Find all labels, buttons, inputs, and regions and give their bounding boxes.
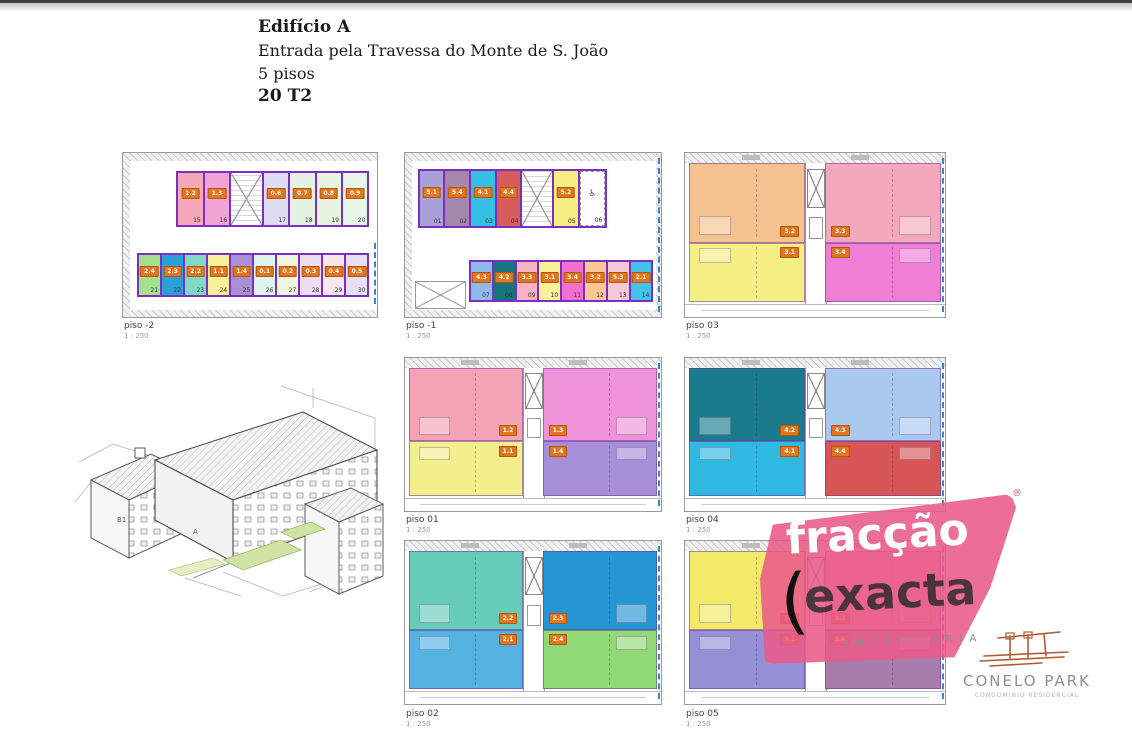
unit-badge: 3.3 [831, 226, 850, 237]
space-number: 02 [459, 218, 467, 225]
elevator-shaft [527, 605, 540, 627]
unit-badge: 4.1 [474, 187, 493, 198]
parking-space: 0.227 [277, 255, 300, 295]
space-number: 15 [193, 217, 201, 224]
unit-badge: 4.2 [495, 272, 514, 283]
space-number: 12 [596, 292, 604, 299]
apartment-unit: 4.2 [689, 368, 805, 441]
floor-plan-body: 2.22.32.12.4 [405, 551, 661, 692]
parking-space: 5.205 [554, 171, 580, 226]
parking-space: 0.429 [323, 255, 346, 295]
plan-label: piso 01 [406, 515, 439, 525]
axonometric-view: B1 A [73, 382, 385, 600]
unit-badge: 1.3 [208, 188, 227, 199]
unit-badge: 4.2 [780, 425, 799, 436]
parking-space: 5.402 [445, 171, 471, 226]
parking-space: 3.309 [517, 262, 540, 301]
elevator-shaft [809, 418, 822, 438]
elevator-shaft [809, 217, 822, 239]
parking-space: 4.404 [497, 171, 523, 226]
axonometric-drawing [73, 382, 385, 600]
apartment-unit: 4.1 [689, 441, 805, 496]
floor-plan-body: 1.21.31.11.4 [405, 368, 661, 499]
garage-ramp [415, 281, 466, 309]
apartment-unit: 1.1 [409, 441, 523, 496]
context-hatch [405, 541, 661, 551]
floor-plan-piso-02: 2.22.32.12.4 [404, 540, 662, 705]
unit-badge: 4.3 [472, 272, 491, 283]
wall-hatch [123, 153, 130, 317]
floor-plan-piso-01: 1.21.31.11.4 [404, 357, 662, 512]
apartment-unit: 4.4 [825, 441, 941, 496]
wall-hatch [405, 310, 661, 317]
unit-badge: 1.2 [499, 425, 518, 436]
space-number: 03 [485, 218, 493, 225]
parking-space: 2.322 [162, 255, 185, 295]
parking-space: 1.316 [205, 173, 231, 225]
parking-row-top: 1.2151.3160.6170.7180.8190.920 [176, 171, 369, 227]
unit-badge: 0.4 [325, 266, 344, 277]
apartment-unit: 1.4 [543, 441, 657, 496]
context-hatch [685, 153, 945, 163]
context-hatch [405, 358, 661, 368]
logo-subtitle: CONDOMÍNIO RESIDENCIAL [952, 692, 1102, 699]
boundary-line [942, 363, 944, 507]
building-header: Edifício A Entrada pela Travessa do Mont… [258, 16, 608, 108]
plan-caption: piso -1 1 : 250 [406, 321, 436, 340]
space-number: 24 [220, 287, 228, 294]
parking-space: 1.215 [178, 173, 204, 225]
wall-hatch [405, 153, 412, 317]
boundary-line [658, 546, 660, 699]
plan-caption: piso 04 1 : 250 [686, 515, 719, 534]
unit-badge: 4.4 [831, 446, 850, 457]
conelo-park-icon [972, 626, 1082, 672]
unit-badge: 1.1 [499, 446, 518, 457]
unit-badge: 3.3 [518, 272, 537, 283]
space-number: 09 [528, 292, 536, 299]
stair-cross [807, 169, 824, 208]
unit-badge: 3.4 [563, 272, 582, 283]
apartment-unit: 3.2 [689, 163, 805, 243]
space-number: 18 [305, 217, 313, 224]
stair-core [805, 368, 828, 499]
parking-space: 1.425 [231, 255, 254, 295]
parking-space: 0.718 [290, 173, 316, 225]
stairwell-block [522, 171, 554, 226]
wall-hatch [123, 153, 377, 161]
apartment-unit: 1.2 [409, 368, 523, 441]
space-number: 23 [196, 287, 204, 294]
space-number: 28 [312, 287, 320, 294]
boundary-line [658, 158, 660, 312]
space-number: 29 [335, 287, 343, 294]
space-number: 07 [482, 292, 490, 299]
space-number: 01 [434, 218, 442, 225]
parking-space: 0.530 [346, 255, 367, 295]
building-typology: 20 T2 [258, 85, 608, 108]
apartment-unit: 3.3 [825, 163, 941, 243]
elevator-shaft [527, 418, 540, 438]
parking-space: 2.421 [139, 255, 162, 295]
space-number: 25 [243, 287, 251, 294]
floor-plan-body: 3.23.33.13.4 [685, 163, 945, 305]
parking-space: 1.124 [208, 255, 231, 295]
plan-caption: piso 02 1 : 250 [406, 709, 439, 728]
context-hatch [685, 358, 945, 368]
space-number: 26 [266, 287, 274, 294]
plan-label: piso 03 [686, 321, 719, 331]
parking-row-bottom: 4.3074.2083.3093.1103.4113.2125.3132.114 [469, 260, 653, 303]
apartment-unit: 2.1 [409, 630, 523, 689]
parking-space: 3.110 [539, 262, 562, 301]
plan-caption: piso 01 1 : 250 [406, 515, 439, 534]
unit-badge: 5.4 [448, 187, 467, 198]
axon-building-a-label: A [193, 528, 198, 536]
space-number: 14 [642, 292, 650, 299]
unit-badge: 2.2 [186, 266, 205, 277]
building-title: Edifício A [258, 16, 608, 39]
wheelchair-icon: ♿ [588, 189, 596, 199]
space-number: 20 [358, 217, 366, 224]
apartment-unit: 2.2 [409, 551, 523, 630]
space-number: 04 [511, 218, 519, 225]
unit-badge: 1.4 [549, 446, 568, 457]
parking-space: 4.208 [494, 262, 517, 301]
space-number: 27 [289, 287, 297, 294]
parking-space: 0.328 [300, 255, 323, 295]
parking-row-bottom: 2.4212.3222.2231.1241.4250.1260.2270.328… [137, 253, 369, 297]
stair-cross [525, 373, 542, 409]
plan-label: piso -2 [124, 321, 154, 331]
space-number: 08 [505, 292, 513, 299]
stair-core [523, 368, 545, 499]
unit-badge: 1.3 [549, 425, 568, 436]
plan-caption: piso 03 1 : 250 [686, 321, 719, 340]
parking-space: 0.126 [254, 255, 277, 295]
parking-space: 0.920 [343, 173, 367, 225]
unit-badge: 2.2 [499, 613, 518, 624]
parking-space: 3.212 [585, 262, 608, 301]
garage-plan-piso-minus-2: 1.2151.3160.6170.7180.8190.920 2.4212.32… [122, 152, 378, 318]
apartment-unit: 1.3 [543, 368, 657, 441]
window-top-shadow [0, 3, 1132, 12]
plan-label: piso 05 [686, 709, 719, 719]
floor-plan-body: 4.24.34.14.4 [685, 368, 945, 499]
unit-badge: 5.1 [422, 187, 441, 198]
unit-badge: 1.4 [232, 266, 251, 277]
unit-badge: 0.3 [301, 266, 320, 277]
stairwell-block [231, 173, 264, 225]
space-number: 19 [331, 217, 339, 224]
unit-badge: 1.2 [181, 188, 200, 199]
parking-space: 0.617 [264, 173, 290, 225]
unit-badge: 2.1 [632, 272, 651, 283]
apartment-unit: 2.4 [543, 630, 657, 689]
terrace-band [405, 691, 661, 704]
wall-hatch [123, 310, 377, 317]
unit-badge: 0.7 [293, 188, 312, 199]
floor-plan-piso-04: 4.24.34.14.4 [684, 357, 946, 512]
building-subtitle: Entrada pela Travessa do Monte de S. Joã… [258, 39, 608, 62]
plan-scale: 1 : 250 [124, 332, 154, 340]
unit-badge: 4.3 [831, 425, 850, 436]
building-floors: 5 pisos [258, 62, 608, 85]
unit-badge: 0.1 [255, 266, 274, 277]
wall-hatch [405, 153, 661, 161]
parking-space: 0.819 [317, 173, 343, 225]
logo-title: CONELO PARK [952, 672, 1102, 690]
stair-core [805, 163, 828, 305]
space-number: 13 [619, 292, 627, 299]
space-number: 16 [220, 217, 228, 224]
parking-space: 3.411 [562, 262, 585, 301]
parking-row-top: 5.1015.4024.1034.4045.205♿06 [418, 169, 607, 228]
boundary-line [374, 243, 376, 304]
plan-label: piso 04 [686, 515, 719, 525]
apartment-unit: 4.3 [825, 368, 941, 441]
plan-caption: piso 05 1 : 250 [686, 709, 719, 728]
unit-badge: 0.6 [267, 188, 286, 199]
unit-badge: 0.8 [319, 188, 338, 199]
unit-badge: 5.3 [609, 272, 628, 283]
space-number: 11 [573, 292, 581, 299]
plan-scale: 1 : 250 [406, 332, 436, 340]
plan-scale: 1 : 250 [686, 332, 719, 340]
stair-cross [807, 373, 824, 409]
space-number: 10 [551, 292, 559, 299]
apartment-unit: 2.3 [543, 551, 657, 630]
space-number: 22 [173, 287, 181, 294]
unit-badge: 2.4 [140, 266, 159, 277]
terrace-band [685, 304, 945, 317]
unit-badge: 4.1 [780, 446, 799, 457]
watermark-word-exacta: (exacta [778, 549, 978, 643]
unit-badge: 3.2 [586, 272, 605, 283]
plan-scale: 1 : 250 [406, 526, 439, 534]
unit-badge: 2.4 [549, 634, 568, 645]
unit-badge: 5.2 [556, 187, 575, 198]
parking-space: 5.101 [420, 171, 446, 226]
plan-scale: 1 : 250 [686, 526, 719, 534]
apartment-unit: 3.1 [689, 243, 805, 303]
space-number: 17 [278, 217, 286, 224]
plan-scale: 1 : 250 [406, 720, 439, 728]
conelo-park-logo: CONELO PARK CONDOMÍNIO RESIDENCIAL [952, 626, 1102, 699]
unit-badge: 0.2 [278, 266, 297, 277]
space-number: 05 [568, 218, 576, 225]
terrace-band [405, 498, 661, 511]
plan-label: piso 02 [406, 709, 439, 719]
unit-badge: 3.1 [540, 272, 559, 283]
parking-space: 5.313 [608, 262, 631, 301]
watermark-word-exacta-text: exacta [803, 561, 978, 624]
boundary-line [942, 158, 944, 312]
space-number: 30 [358, 287, 366, 294]
unit-badge: 3.4 [831, 247, 850, 258]
unit-badge: 0.5 [348, 266, 367, 277]
parking-space: 2.223 [185, 255, 208, 295]
garage-plan-piso-minus-1: 5.1015.4024.1034.4045.205♿06 4.3074.2083… [404, 152, 662, 318]
unit-badge: 2.3 [549, 613, 568, 624]
parking-space: 2.114 [631, 262, 652, 301]
unit-badge: 1.1 [209, 266, 228, 277]
space-number: 21 [150, 287, 158, 294]
axon-building-b1-label: B1 [117, 516, 126, 524]
apartment-unit: 3.4 [825, 243, 941, 303]
parking-space: 4.307 [471, 262, 494, 301]
page: { "header": { "title": "Edifício A", "su… [0, 0, 1132, 736]
unit-badge: 3.2 [780, 226, 799, 237]
terrace-band [685, 691, 945, 704]
plan-label: piso -1 [406, 321, 436, 331]
registered-mark-icon: ® [1012, 488, 1022, 499]
unit-badge: 2.1 [499, 634, 518, 645]
unit-badge: 2.3 [163, 266, 182, 277]
parking-space: 4.103 [471, 171, 497, 226]
stair-core [523, 551, 545, 692]
unit-badge: 3.1 [780, 247, 799, 258]
space-number: 06 [595, 217, 603, 224]
stair-cross [525, 557, 542, 596]
unit-badge: 0.9 [346, 188, 365, 199]
boundary-line [658, 363, 660, 507]
accessible-parking-space: ♿06 [580, 171, 606, 226]
floor-plan-piso-03: 3.23.33.13.4 [684, 152, 946, 318]
plan-scale: 1 : 250 [686, 720, 719, 728]
plan-caption: piso -2 1 : 250 [124, 321, 154, 340]
unit-badge: 4.4 [499, 187, 518, 198]
